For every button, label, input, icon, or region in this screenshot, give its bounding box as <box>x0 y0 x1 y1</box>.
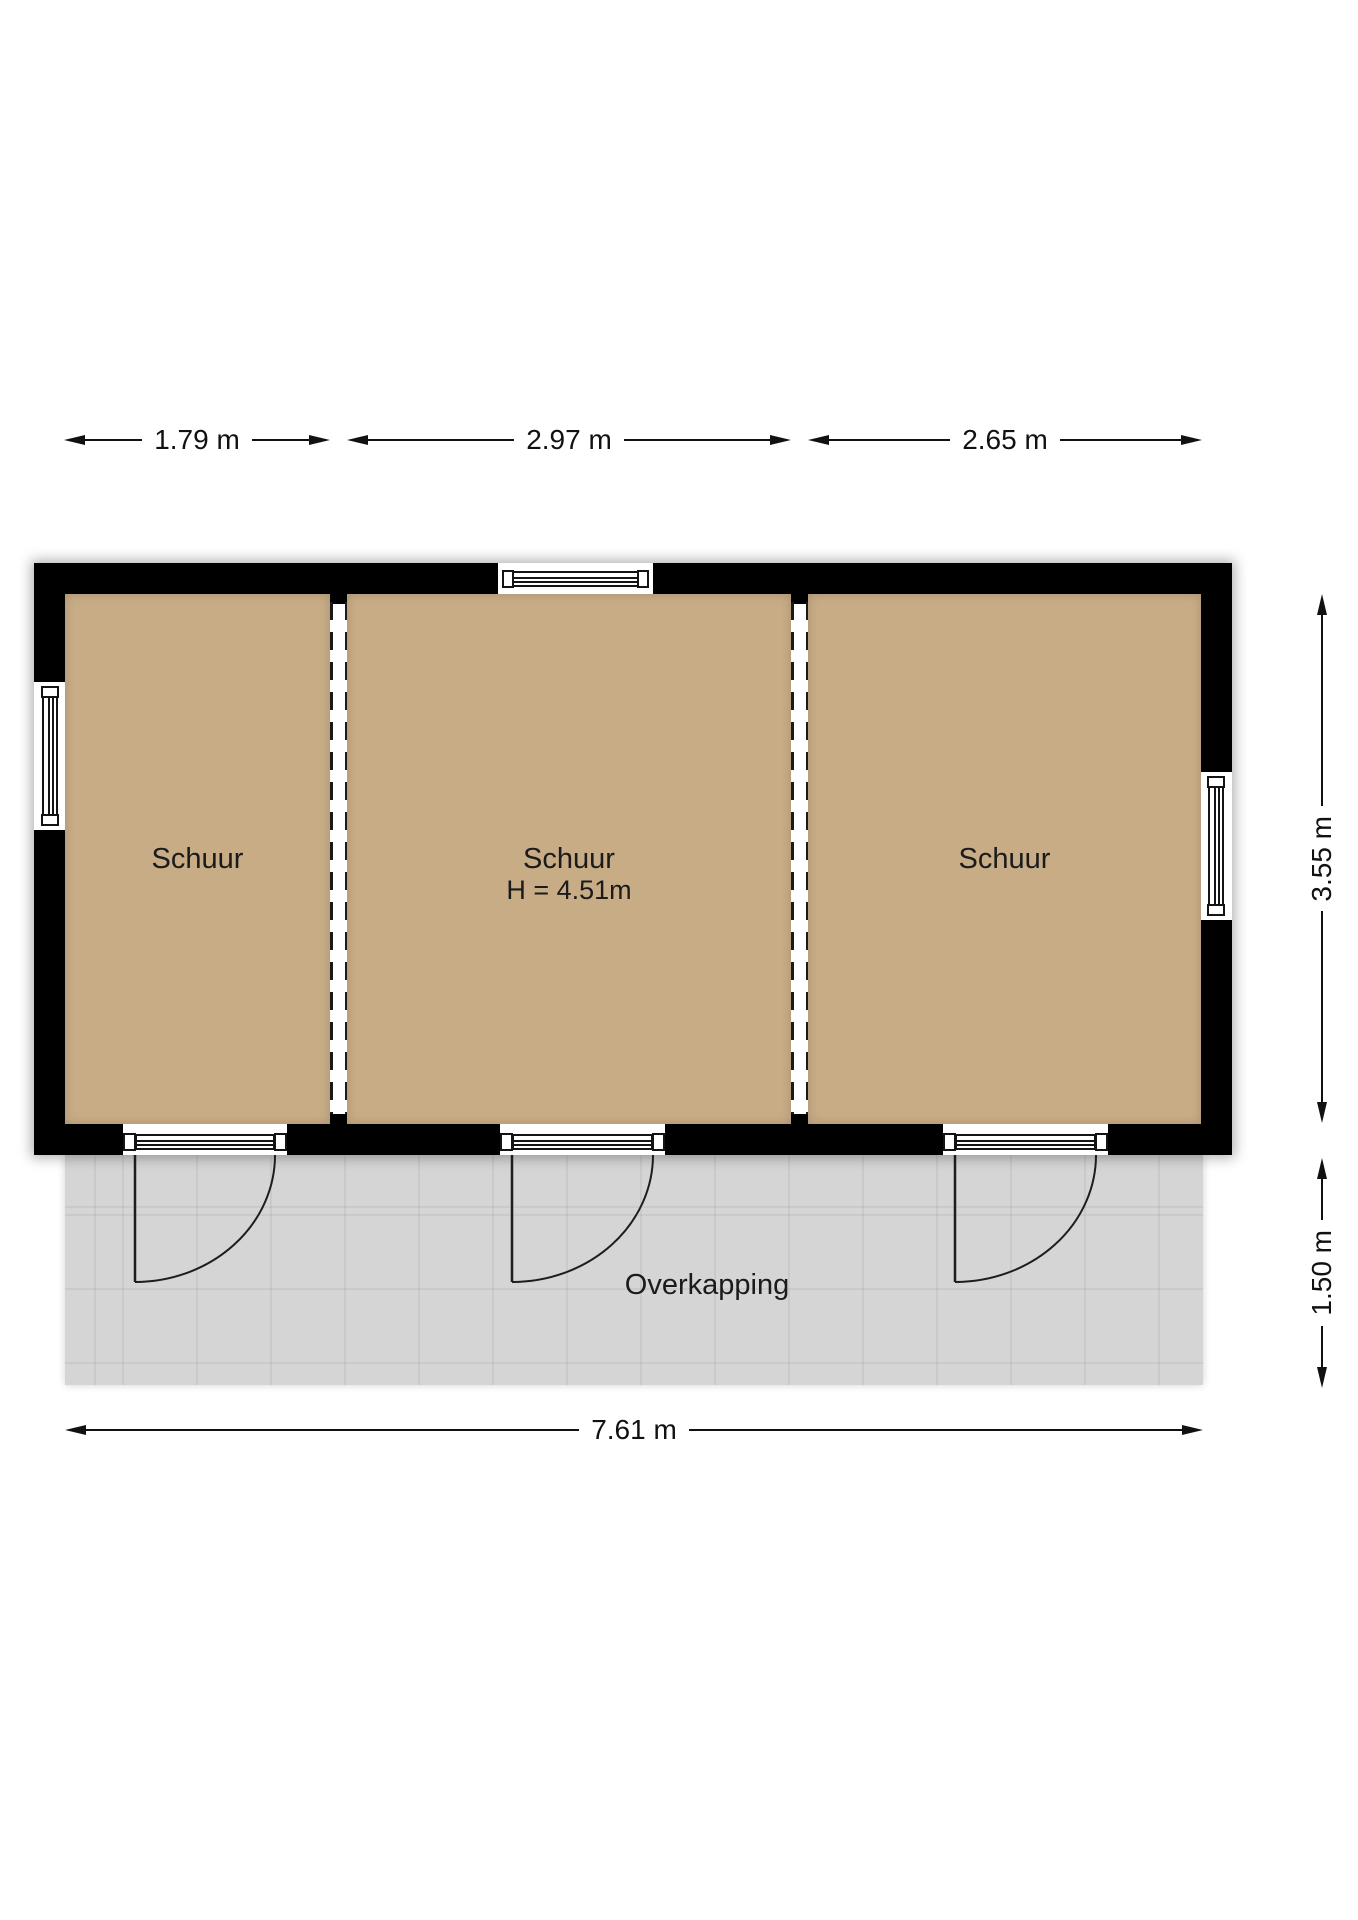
dimension-arrowhead-right-icon <box>309 435 330 445</box>
dimension-line-segment <box>1321 1326 1323 1367</box>
room-label-block: Schuur <box>65 843 330 875</box>
door-threshold <box>135 1134 275 1150</box>
room-schuur-middle: Schuur H = 4.51m <box>347 594 791 1124</box>
door-threshold <box>512 1134 653 1150</box>
partition-dashed-line <box>345 602 348 1116</box>
dimension-line-bottom-overall-width: 7.61 m <box>65 1414 1203 1446</box>
dimension-arrowhead-right-icon <box>1182 1425 1203 1435</box>
door-opening-right <box>943 1124 1108 1155</box>
dimension-label: 1.50 m <box>1306 1220 1338 1326</box>
partition-wall-2 <box>791 594 808 1124</box>
room-label-block: Schuur <box>808 843 1201 875</box>
dimension-line-segment <box>829 439 950 441</box>
overkapping-label: Overkapping <box>65 1269 1203 1302</box>
partition-wall-1 <box>330 594 347 1124</box>
window-glazing-line <box>48 688 50 824</box>
dimension-line-segment <box>368 439 514 441</box>
door-opening-left <box>123 1124 287 1155</box>
partition-stub <box>330 1114 347 1124</box>
dimension-line-segment <box>86 1429 579 1431</box>
window-end-cap <box>41 814 59 826</box>
window-end-cap <box>41 686 59 698</box>
dimension-line-segment <box>689 1429 1182 1431</box>
door-jamb <box>652 1133 665 1151</box>
dimension-line-segment <box>1321 615 1323 806</box>
window-glazing-line <box>1214 778 1216 914</box>
door-threshold-line <box>514 1140 651 1142</box>
room-label: Schuur <box>347 843 791 875</box>
window-end-cap <box>1207 776 1225 788</box>
dimension-arrowhead-right-icon <box>770 435 791 445</box>
door-jamb <box>943 1133 956 1151</box>
dimension-line-right-building-depth: 3.55 m <box>1305 594 1339 1123</box>
window-top <box>498 563 653 594</box>
dimension-arrowhead-up-icon <box>1317 1158 1327 1179</box>
room-height-label: H = 4.51m <box>347 875 791 905</box>
door-threshold-line <box>137 1140 273 1142</box>
window-glazing-line <box>52 688 54 824</box>
window-frame <box>502 571 649 587</box>
dimension-line-segment <box>624 439 770 441</box>
floorplan-canvas: 1.79 m 2.97 m 2.65 m Schuur Schuur H = 4… <box>0 0 1358 1920</box>
dimension-line-segment <box>1321 911 1323 1102</box>
window-end-cap <box>1207 904 1225 916</box>
dimension-arrowhead-left-icon <box>808 435 829 445</box>
door-threshold-line <box>514 1144 651 1146</box>
dimension-arrowhead-left-icon <box>347 435 368 445</box>
door-jamb <box>1095 1133 1108 1151</box>
dimension-arrowhead-left-icon <box>65 1425 86 1435</box>
partition-dashed-line <box>791 602 794 1116</box>
dimension-arrowhead-right-icon <box>1181 435 1202 445</box>
dimension-arrowhead-down-icon <box>1317 1102 1327 1123</box>
door-jamb <box>500 1133 513 1151</box>
window-glazing-line <box>504 581 647 583</box>
dimension-line-segment <box>1321 1179 1323 1220</box>
window-frame <box>42 686 58 826</box>
dimension-line-top-middle-room: 2.97 m <box>347 424 791 456</box>
partition-stub <box>791 1114 808 1124</box>
dimension-arrowhead-down-icon <box>1317 1367 1327 1388</box>
dimension-label: 7.61 m <box>579 1414 689 1446</box>
door-threshold-line <box>957 1140 1094 1142</box>
dimension-line-segment <box>85 439 142 441</box>
dimension-arrowhead-up-icon <box>1317 594 1327 615</box>
dimension-line-top-right-room: 2.65 m <box>808 424 1202 456</box>
door-jamb <box>274 1133 287 1151</box>
dimension-label: 2.97 m <box>514 424 624 456</box>
door-threshold-line <box>957 1144 1094 1146</box>
dimension-line-right-canopy-depth: 1.50 m <box>1305 1158 1339 1388</box>
partition-dashed-line <box>330 602 333 1116</box>
dimension-line-segment <box>252 439 309 441</box>
room-label: Schuur <box>65 843 330 875</box>
door-opening-middle <box>500 1124 665 1155</box>
window-end-cap <box>637 570 649 588</box>
overkapping-area: Overkapping <box>65 1155 1203 1385</box>
window-end-cap <box>502 570 514 588</box>
room-schuur-left: Schuur <box>65 594 330 1124</box>
building-outline: Schuur Schuur H = 4.51m Schuur <box>34 563 1232 1155</box>
window-frame <box>1208 776 1224 916</box>
dimension-label: 2.65 m <box>950 424 1060 456</box>
door-jamb <box>123 1133 136 1151</box>
dimension-label: 3.55 m <box>1306 806 1338 912</box>
door-threshold <box>955 1134 1096 1150</box>
window-glazing-line <box>504 577 647 579</box>
room-schuur-right: Schuur <box>808 594 1201 1124</box>
room-label: Schuur <box>808 843 1201 875</box>
window-glazing-line <box>1218 778 1220 914</box>
dimension-line-top-left-room: 1.79 m <box>64 424 330 456</box>
window-right <box>1201 772 1232 920</box>
door-threshold-line <box>137 1144 273 1146</box>
dimension-label: 1.79 m <box>142 424 252 456</box>
dimension-arrowhead-left-icon <box>64 435 85 445</box>
dimension-line-segment <box>1060 439 1181 441</box>
partition-dashed-line <box>806 602 809 1116</box>
window-left <box>34 682 65 830</box>
room-label-block: Schuur H = 4.51m <box>347 843 791 905</box>
